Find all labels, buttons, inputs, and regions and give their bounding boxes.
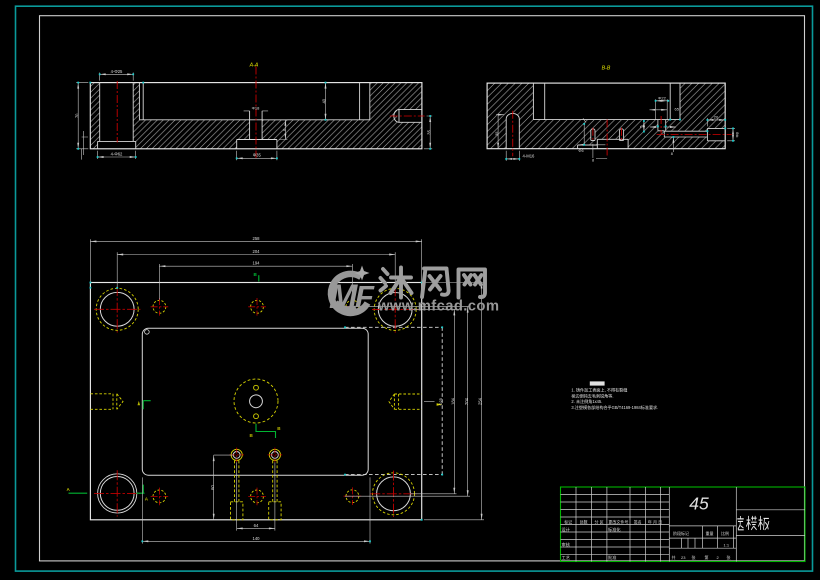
svg-text:254: 254: [478, 397, 483, 405]
svg-text:35: 35: [426, 129, 431, 134]
svg-text:棱边倒钝去毛刺锐角等.: 棱边倒钝去毛刺锐角等.: [571, 392, 613, 398]
svg-text:204: 204: [253, 249, 261, 254]
svg-text:1:1: 1:1: [724, 542, 730, 547]
svg-text:第: 第: [705, 554, 709, 560]
svg-text:www.mfcad.com: www.mfcad.com: [377, 299, 499, 315]
svg-text:4-Φ62: 4-Φ62: [111, 152, 123, 157]
svg-text:重量: 重量: [706, 530, 714, 536]
svg-text:Φ8: Φ8: [735, 131, 740, 137]
svg-text:Φ35: Φ35: [253, 153, 262, 158]
svg-text:8: 8: [592, 159, 594, 163]
svg-text:194: 194: [253, 261, 261, 266]
svg-text:M: M: [329, 278, 358, 316]
svg-text:A-A: A-A: [249, 62, 259, 68]
svg-text:签名: 签名: [634, 518, 642, 524]
svg-text:4-Φ25: 4-Φ25: [111, 69, 123, 74]
svg-text:张: 张: [692, 554, 696, 560]
svg-text:共: 共: [672, 554, 676, 560]
svg-text:Φ18: Φ18: [252, 106, 260, 111]
svg-text:阶段标记: 阶段标记: [673, 530, 689, 536]
svg-text:20: 20: [714, 114, 719, 119]
svg-text:70: 70: [74, 113, 79, 118]
svg-text:批准: 批准: [608, 554, 616, 561]
svg-text:5: 5: [640, 125, 644, 127]
svg-text:4-M16: 4-M16: [523, 153, 536, 158]
svg-text:40: 40: [322, 98, 327, 103]
svg-text:184: 184: [450, 397, 455, 405]
svg-text:2. 未注倒角1x45.: 2. 未注倒角1x45.: [571, 398, 602, 404]
svg-text:140: 140: [253, 536, 261, 541]
svg-text:B-B: B-B: [602, 66, 611, 72]
svg-text:65: 65: [675, 106, 680, 111]
svg-text:23: 23: [681, 555, 686, 560]
svg-text:8: 8: [671, 152, 673, 156]
svg-text:60: 60: [210, 485, 215, 490]
svg-text:204: 204: [464, 397, 469, 405]
svg-text:Φ6: Φ6: [578, 149, 583, 153]
svg-text:更改文件号: 更改文件号: [608, 518, 628, 524]
svg-text:1. 铸件加工表面上, 不得有裂缝: 1. 铸件加工表面上, 不得有裂缝: [571, 387, 627, 393]
svg-text:张: 张: [727, 554, 731, 560]
svg-text:审核: 审核: [562, 541, 571, 548]
svg-text:标准化: 标准化: [608, 526, 621, 533]
svg-text:比例: 比例: [721, 530, 729, 536]
svg-text:35: 35: [494, 131, 499, 136]
svg-text:3.注塑模各部结构合乎GB/T4169-1984标准要求.: 3.注塑模各部结构合乎GB/T4169-1984标准要求.: [571, 404, 658, 410]
svg-text:处数: 处数: [580, 518, 588, 524]
svg-text:分 区: 分 区: [595, 518, 604, 524]
svg-text:标记: 标记: [564, 518, 572, 524]
svg-text:设计: 设计: [562, 526, 570, 533]
svg-text:工艺: 工艺: [562, 555, 570, 560]
svg-text:Φ25: Φ25: [439, 398, 443, 405]
svg-text:258: 258: [253, 236, 261, 241]
svg-text:F: F: [355, 279, 375, 314]
svg-text:年 月 日: 年 月 日: [648, 518, 662, 524]
svg-text:64: 64: [254, 523, 259, 528]
svg-text:Φ22: Φ22: [658, 95, 666, 100]
svg-text:45: 45: [689, 494, 709, 514]
